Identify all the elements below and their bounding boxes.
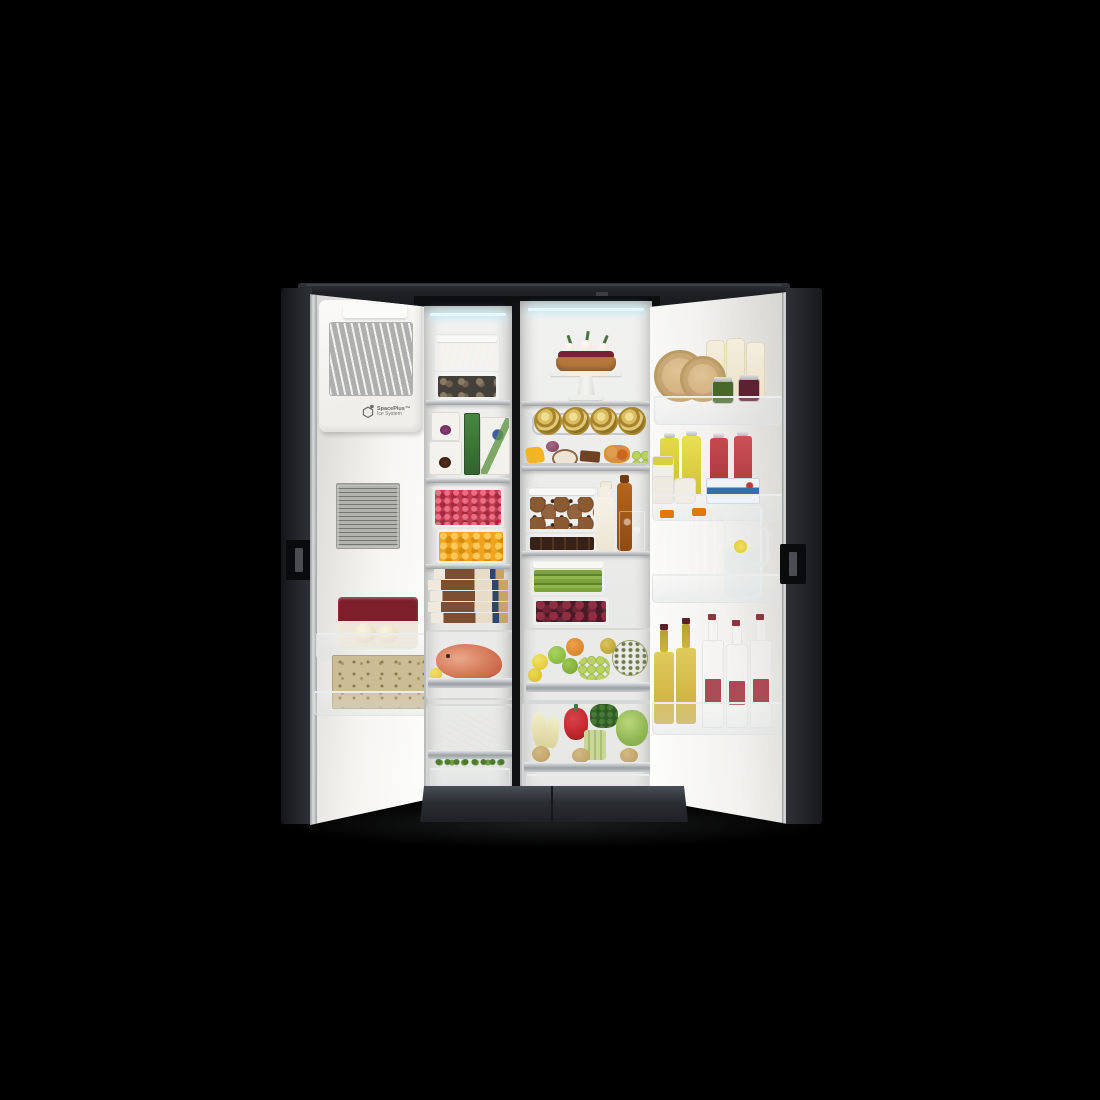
spaceplus-logo-text: SpacePlus™ Ice System <box>377 406 410 418</box>
cream-dollop <box>581 340 592 351</box>
drawer-front <box>430 768 510 789</box>
melon <box>612 640 648 676</box>
left-door-trim <box>310 291 317 825</box>
milk-bottle <box>596 481 614 551</box>
berry-artwork <box>439 457 451 468</box>
root-vegetable <box>532 746 550 762</box>
jar-lid <box>714 377 732 382</box>
mussels-container <box>434 371 500 401</box>
wine-neck <box>682 624 690 648</box>
container-lid <box>533 562 603 568</box>
cherries-container <box>532 596 610 626</box>
frozen-box <box>428 580 508 590</box>
whole-fish <box>436 644 502 680</box>
jug-cap <box>692 508 706 516</box>
grapes <box>578 656 610 680</box>
fresh-herbs <box>434 758 506 767</box>
brownies <box>530 537 594 550</box>
fridge-compartment <box>520 301 652 798</box>
bottle-label <box>753 679 769 703</box>
ice-maker-cap <box>343 304 407 318</box>
berry-tart-crust <box>556 357 616 372</box>
drawer-rail <box>428 678 512 688</box>
left-door-hinge <box>286 540 312 580</box>
drawer-rail <box>526 682 650 692</box>
cake-stand-base <box>569 395 603 400</box>
freezer-compartment <box>424 306 512 796</box>
mango-cubes-container <box>436 528 506 564</box>
freezer-shelf-4 <box>428 569 508 627</box>
bottle-cap <box>737 431 748 436</box>
can-rack-zone <box>520 405 652 437</box>
frozen-box <box>430 591 508 601</box>
right-door-hinge <box>780 544 806 584</box>
frozen-box <box>428 602 508 612</box>
frozen-beans-box <box>464 413 480 475</box>
orange <box>566 638 584 656</box>
right-door-interior <box>650 292 788 824</box>
left-door-interior: SpacePlus™ Ice System <box>310 291 428 825</box>
freezer-shelf-3 <box>424 483 512 564</box>
lemon <box>528 668 542 682</box>
cookie-container <box>526 487 598 533</box>
fridge-shelf-4 <box>520 556 652 626</box>
drawer-rail <box>428 750 512 759</box>
center-divider <box>512 303 520 797</box>
honey-cap <box>620 475 629 483</box>
raspberries <box>435 490 501 525</box>
wine-neck <box>660 630 668 652</box>
mussels <box>438 376 496 397</box>
gold-can <box>534 407 562 435</box>
jar-lid <box>740 375 758 380</box>
left-door-bin-2 <box>314 655 426 713</box>
berry-artwork <box>440 425 451 435</box>
fruit-drawer <box>524 628 652 702</box>
container-lid <box>529 489 595 495</box>
logo-line2: Ice System <box>377 411 402 417</box>
salmon-container <box>434 334 500 372</box>
ice-cream-tub-large <box>429 441 462 475</box>
bottle-neck <box>708 620 718 642</box>
iced-tea-glass <box>619 511 645 553</box>
fish-eye <box>446 654 450 658</box>
freezer-fish-drawer <box>426 630 514 700</box>
asparagus-container <box>530 560 606 596</box>
plinth-seam <box>551 786 553 822</box>
door-bin-front <box>314 691 428 716</box>
cookies <box>530 497 594 529</box>
pepper-stem <box>574 704 578 711</box>
lemon-slice <box>734 540 747 553</box>
ice-tray-window <box>329 322 413 396</box>
bottle-neck <box>732 626 742 646</box>
leafy-greens <box>590 704 618 728</box>
right-door-bin-4 <box>652 614 780 732</box>
cheese-wedge <box>525 446 545 464</box>
jug-cap <box>660 510 674 518</box>
fridge-shelf-3 <box>520 471 652 551</box>
vegetable-drawer <box>522 702 654 792</box>
milk-body <box>596 497 614 551</box>
left-door-bin-1 <box>316 597 426 657</box>
jar-lid-yellow <box>653 457 673 465</box>
base-plinth <box>420 786 688 822</box>
bottle-neck <box>756 620 766 642</box>
raspberries-container <box>432 486 504 528</box>
freezer-shelf-2 <box>424 405 512 478</box>
spec-label <box>336 483 400 549</box>
green-apple <box>562 658 578 674</box>
right-door-bin-3 <box>652 504 778 600</box>
chocolate-piece <box>580 450 601 463</box>
asparagus <box>534 570 602 592</box>
drawer-rail <box>524 762 652 772</box>
cake-stand-plate <box>550 371 622 376</box>
bottle-cap <box>664 433 675 438</box>
container-lid <box>437 336 497 342</box>
refrigerator-product-photo: Side-by-side refrigerator with both door… <box>0 0 1100 1100</box>
brownie-container <box>526 533 598 553</box>
fridge-shelf-2 <box>520 437 652 466</box>
cabinet-top-highlight <box>306 284 782 286</box>
mango-cubes <box>439 532 503 561</box>
ice-cream-tub-small <box>431 412 460 441</box>
bottle-label <box>705 679 721 703</box>
gold-can <box>618 407 646 435</box>
ice-maker: SpacePlus™ Ice System <box>319 300 421 432</box>
cake-stand-stem <box>577 376 595 396</box>
bottle-cap <box>686 431 697 436</box>
spaceplus-logo: SpacePlus™ Ice System <box>361 400 419 424</box>
bottle-cap <box>713 433 724 438</box>
salmon-fillets <box>438 344 496 368</box>
gold-can <box>590 407 618 435</box>
frozen-box <box>434 569 504 579</box>
left-hinge-pin <box>295 548 303 572</box>
freezer-meat-drawer <box>426 704 514 792</box>
door-bin-front <box>654 396 782 425</box>
right-hinge-pin <box>789 552 797 576</box>
pitcher-handle <box>756 526 769 566</box>
door-bin-front <box>652 702 782 735</box>
root-vegetable <box>620 748 638 763</box>
door-bin-front <box>652 574 780 603</box>
lettuce <box>616 710 648 746</box>
spaceplus-icon <box>361 404 375 420</box>
fruit-mix <box>604 445 630 463</box>
frozen-dessert-carton <box>480 417 510 475</box>
cherries <box>536 601 606 622</box>
right-door-bin-1 <box>654 338 780 422</box>
fridge-shelf-1 <box>520 301 652 401</box>
frozen-box <box>431 613 508 623</box>
root-vegetable <box>572 748 590 763</box>
freezer-shelf-1 <box>424 306 512 400</box>
gold-can <box>562 407 590 435</box>
